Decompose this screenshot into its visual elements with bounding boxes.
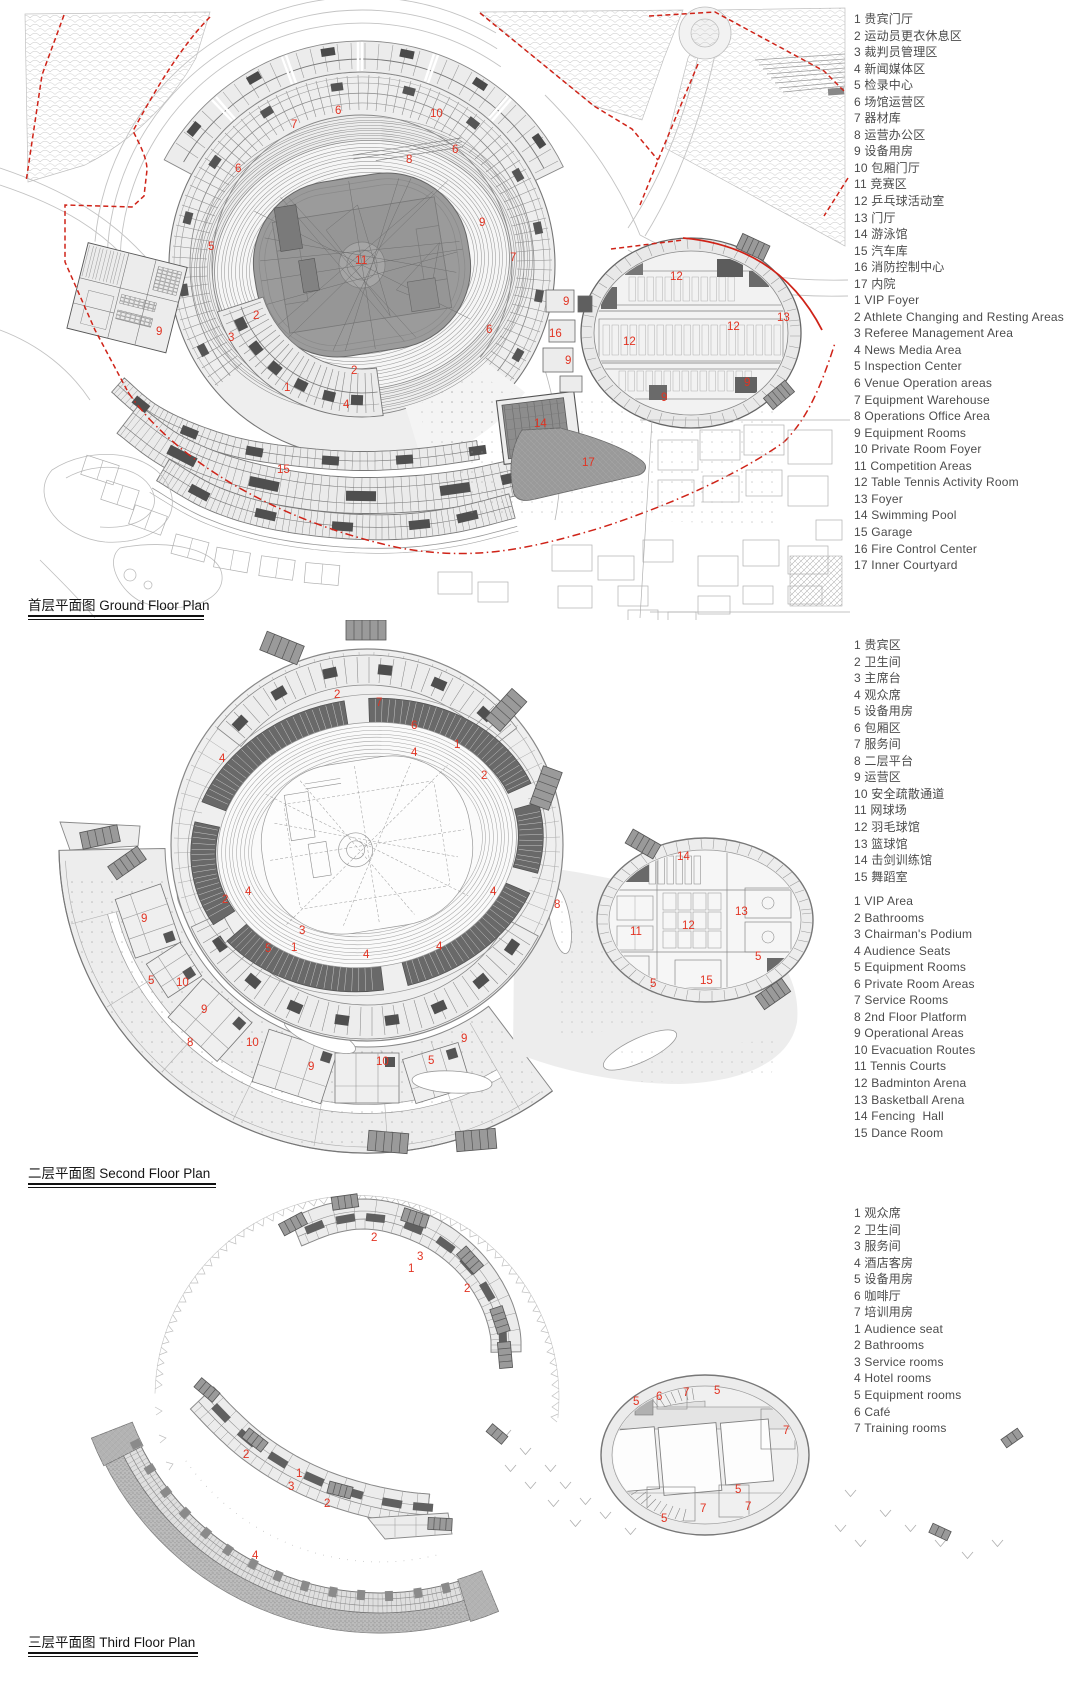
svg-text:10: 10 — [246, 1037, 259, 1049]
svg-text:10: 10 — [176, 977, 189, 989]
svg-text:5: 5 — [208, 241, 214, 253]
svg-text:2: 2 — [464, 1283, 470, 1295]
svg-text:12: 12 — [670, 271, 683, 283]
svg-text:1: 1 — [454, 739, 460, 751]
svg-text:16: 16 — [549, 328, 562, 340]
svg-text:4: 4 — [436, 941, 443, 953]
svg-text:2: 2 — [481, 770, 487, 782]
svg-text:5: 5 — [755, 951, 761, 963]
svg-text:7: 7 — [700, 1503, 706, 1515]
svg-text:9: 9 — [661, 392, 667, 404]
svg-text:8: 8 — [187, 1037, 193, 1049]
svg-text:9: 9 — [201, 1004, 207, 1016]
svg-text:5: 5 — [714, 1385, 720, 1397]
svg-text:4: 4 — [411, 747, 418, 759]
svg-text:7: 7 — [683, 1387, 689, 1399]
svg-text:6: 6 — [452, 144, 458, 156]
svg-text:5: 5 — [735, 1484, 741, 1496]
svg-text:12: 12 — [623, 336, 636, 348]
svg-text:13: 13 — [735, 906, 748, 918]
svg-text:5: 5 — [633, 1396, 639, 1408]
svg-text:1: 1 — [284, 382, 290, 394]
svg-text:2: 2 — [351, 365, 357, 377]
svg-text:3: 3 — [417, 1251, 423, 1263]
svg-text:1: 1 — [408, 1263, 414, 1275]
svg-text:11: 11 — [630, 926, 642, 938]
svg-text:9: 9 — [479, 217, 485, 229]
svg-text:1: 1 — [291, 942, 297, 954]
svg-text:5: 5 — [428, 1055, 434, 1067]
svg-text:17: 17 — [582, 457, 595, 469]
svg-text:4: 4 — [490, 886, 497, 898]
svg-text:7: 7 — [745, 1501, 751, 1513]
svg-text:3: 3 — [228, 332, 234, 344]
svg-text:9: 9 — [563, 296, 569, 308]
svg-text:11: 11 — [355, 253, 368, 267]
svg-text:2: 2 — [324, 1498, 330, 1510]
svg-text:12: 12 — [727, 321, 740, 333]
svg-text:6: 6 — [411, 720, 417, 732]
svg-text:2: 2 — [253, 310, 259, 322]
svg-text:9: 9 — [565, 355, 571, 367]
svg-text:9: 9 — [461, 1033, 467, 1045]
svg-text:5: 5 — [661, 1513, 667, 1525]
svg-text:5: 5 — [148, 975, 154, 987]
svg-text:9: 9 — [744, 377, 750, 389]
svg-text:7: 7 — [510, 252, 516, 264]
svg-text:14: 14 — [677, 851, 690, 863]
svg-text:3: 3 — [288, 1481, 294, 1493]
svg-text:4: 4 — [252, 1550, 259, 1562]
svg-text:7: 7 — [783, 1425, 789, 1437]
svg-text:4: 4 — [343, 399, 350, 411]
svg-text:6: 6 — [656, 1391, 662, 1403]
svg-text:7: 7 — [376, 697, 382, 709]
svg-text:14: 14 — [534, 418, 547, 430]
svg-text:2: 2 — [334, 689, 340, 701]
svg-text:2: 2 — [371, 1232, 377, 1244]
svg-text:4: 4 — [363, 949, 370, 961]
svg-text:2: 2 — [243, 1449, 249, 1461]
svg-text:4: 4 — [245, 886, 252, 898]
svg-text:3: 3 — [299, 925, 305, 937]
svg-text:6: 6 — [235, 163, 241, 175]
svg-text:12: 12 — [682, 920, 695, 932]
svg-text:15: 15 — [277, 464, 290, 476]
svg-text:5: 5 — [265, 943, 271, 955]
svg-text:13: 13 — [777, 312, 790, 324]
svg-text:10: 10 — [430, 108, 443, 120]
svg-text:9: 9 — [308, 1061, 314, 1073]
svg-text:9: 9 — [141, 913, 147, 925]
svg-text:4: 4 — [219, 753, 226, 765]
svg-text:7: 7 — [291, 119, 297, 131]
svg-text:6: 6 — [335, 105, 341, 117]
svg-text:1: 1 — [296, 1468, 302, 1480]
svg-text:2: 2 — [222, 894, 228, 906]
svg-text:6: 6 — [486, 324, 492, 336]
svg-text:15: 15 — [700, 975, 713, 987]
svg-text:9: 9 — [156, 326, 162, 338]
svg-text:8: 8 — [554, 899, 560, 911]
svg-text:10: 10 — [376, 1056, 389, 1068]
svg-text:5: 5 — [650, 978, 656, 990]
svg-text:8: 8 — [406, 154, 412, 166]
